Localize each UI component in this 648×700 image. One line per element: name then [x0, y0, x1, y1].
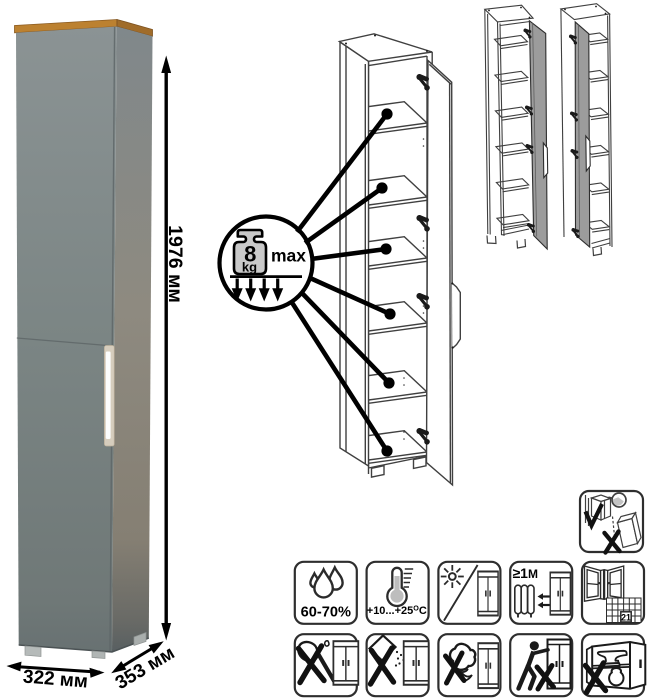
- svg-text:21: 21: [621, 612, 631, 622]
- svg-text:60-70%: 60-70%: [301, 605, 351, 621]
- svg-text:max: max: [271, 245, 306, 265]
- svg-text:≥1M: ≥1M: [513, 565, 538, 581]
- svg-text:322 мм: 322 мм: [22, 666, 89, 692]
- svg-text:1976 мм: 1976 мм: [164, 225, 186, 303]
- svg-text:kg: kg: [242, 260, 257, 275]
